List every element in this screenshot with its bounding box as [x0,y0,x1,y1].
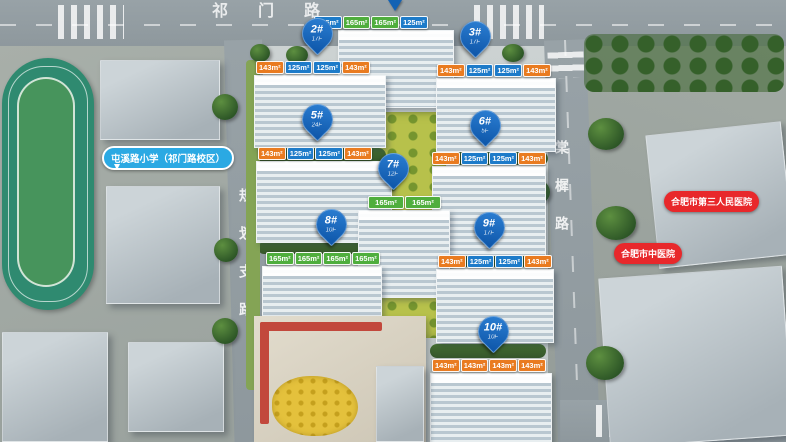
pin-building-6[interactable]: 6# 5F [468,109,502,155]
landmark-label-hospital-tcm[interactable]: 合肥市中医院 [614,243,682,264]
label-tail [676,205,682,219]
running-track [2,58,94,310]
unit-area-tag: 143m² [523,64,551,77]
unit-area-tag: 165m² [266,252,294,265]
tower-building-10 [430,373,552,442]
pin-text: 3# 17F [469,28,481,46]
site-plan-aerial: 祁门路 规划支路 棠樨路 125m² [0,0,786,442]
pin-building-1-partial[interactable] [388,0,402,11]
building-floors: 10F [484,334,502,340]
tree-band [584,34,784,92]
unit-area-tag: 143m² [342,61,370,74]
unit-tags-building-3: 143m² 125m² 125m² 143m² [437,64,551,77]
sports-field [17,77,75,287]
unit-area-tag: 143m² [518,359,546,372]
building-floors: 10F [325,228,337,234]
unit-area-tag: 143m² [438,255,466,268]
building-floors: 17F [469,40,481,46]
pin-text: 8# 10F [325,216,337,234]
kindergarten-roof-accent [260,322,382,331]
unit-area-tag: 125m² [494,64,522,77]
hospital-third-label-text: 合肥市第三人民医院 [671,197,752,207]
unit-area-tag: 143m² [518,152,546,165]
pin-building-10[interactable]: 10# 10F [476,315,510,361]
pin-building-8[interactable]: 8# 10F [314,208,348,254]
building-number: 2# [311,25,323,36]
kindergarten-annex [376,366,424,442]
tree [212,318,238,344]
neighbor-building [128,342,224,432]
label-tail [114,164,120,176]
neighbor-building [2,332,108,442]
label-tail [626,257,632,271]
tree [214,238,238,262]
pin-balloon: 7# 12F [371,147,415,191]
pin-balloon: 2# 17F [295,12,339,56]
pin-building-2[interactable]: 2# 17F [300,17,334,63]
building-floors: 24F [311,123,323,129]
tree [250,44,270,62]
unit-area-tag: 143m² [524,255,552,268]
unit-area-tag: 165m² [371,16,399,29]
landmark-label-school[interactable]: 屯溪路小学（祁门路校区） [102,146,234,170]
landmark-label-hospital-third[interactable]: 合肥市第三人民医院 [664,191,759,212]
tower-building-8 [262,266,382,318]
kindergarten-roof-accent [260,322,269,424]
pin-balloon: 10# 10F [471,310,515,354]
unit-area-tag: 165m² [405,196,441,209]
unit-area-tag: 143m² [344,147,372,160]
pin-balloon: 9# 17F [467,206,511,250]
crosswalk [547,51,584,78]
unit-area-tag: 143m² [432,152,460,165]
building-number: 3# [469,28,481,39]
building-number: 5# [311,111,323,122]
tree [586,346,624,380]
building-floors: 5F [479,129,491,135]
building-floors: 17F [483,231,495,237]
building-number: 7# [387,160,399,171]
pin-balloon: 6# 5F [463,104,507,148]
pin-building-5[interactable]: 5# 24F [300,103,334,149]
road-name-right: 棠樨路 [552,140,572,254]
crosswalk [58,5,124,39]
pin-text: 10# 10F [484,322,502,340]
unit-area-tag: 143m² [256,61,284,74]
school-building [100,60,220,140]
building-floors: 17F [311,37,323,43]
building-number: 10# [484,322,502,333]
tree [212,94,238,120]
pin-text: 6# 5F [479,117,491,135]
building-number: 9# [483,219,495,230]
school-label-text: 屯溪路小学（祁门路校区） [111,154,225,165]
pin-text: 9# 17F [483,219,495,237]
pin-building-9[interactable]: 9# 17F [472,211,506,257]
pin-text: 7# 12F [387,160,399,178]
unit-area-tag: 143m² [432,359,460,372]
tree [502,44,524,62]
pin-building-7[interactable]: 7# 12F [376,152,410,198]
school-building [106,186,220,304]
pin-text: 2# 17F [311,25,323,43]
pin-balloon: 3# 17F [453,15,497,59]
building-floors: 12F [387,172,399,178]
hospital-building [598,266,786,442]
kindergarten-playground [272,376,358,436]
pin-building-3[interactable]: 3# 17F [458,20,492,66]
tree [588,118,624,150]
unit-area-tag: 165m² [343,16,371,29]
building-number: 8# [325,216,337,227]
kindergarten-building [254,316,426,442]
pin-balloon: 5# 24F [295,98,339,142]
tree [596,206,636,240]
unit-area-tag: 165m² [352,252,380,265]
unit-area-tag: 143m² [258,147,286,160]
building-number: 6# [479,117,491,128]
unit-area-tag: 125m² [400,16,428,29]
pin-balloon: 8# 10F [309,203,353,247]
pin-text: 5# 24F [311,111,323,129]
